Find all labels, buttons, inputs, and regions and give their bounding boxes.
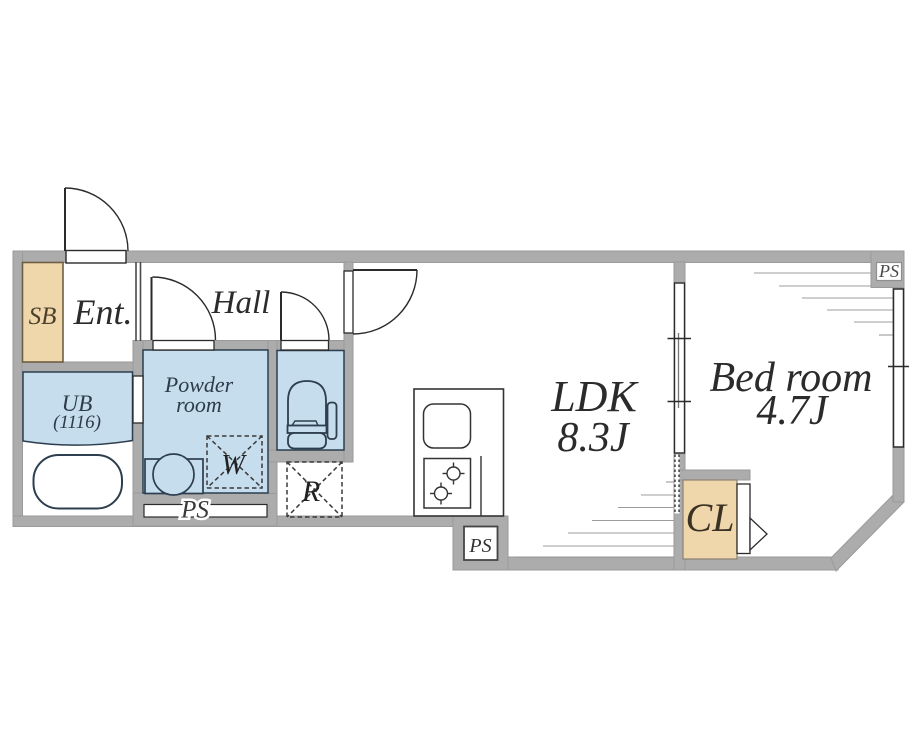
svg-text:CL: CL xyxy=(686,495,735,540)
svg-text:room: room xyxy=(176,392,222,417)
svg-text:PS: PS xyxy=(180,497,209,524)
svg-text:SB: SB xyxy=(29,303,57,330)
svg-text:Hall: Hall xyxy=(211,285,271,321)
svg-text:LDK: LDK xyxy=(550,372,639,421)
svg-text:W: W xyxy=(221,450,247,481)
svg-text:Ent.: Ent. xyxy=(73,292,133,332)
svg-text:PS: PS xyxy=(468,535,491,557)
svg-text:8.3J: 8.3J xyxy=(557,415,631,461)
svg-text:4.7J: 4.7J xyxy=(756,388,830,434)
svg-text:(1116): (1116) xyxy=(53,412,101,433)
svg-text:R: R xyxy=(301,475,320,508)
svg-text:PS: PS xyxy=(878,261,899,281)
